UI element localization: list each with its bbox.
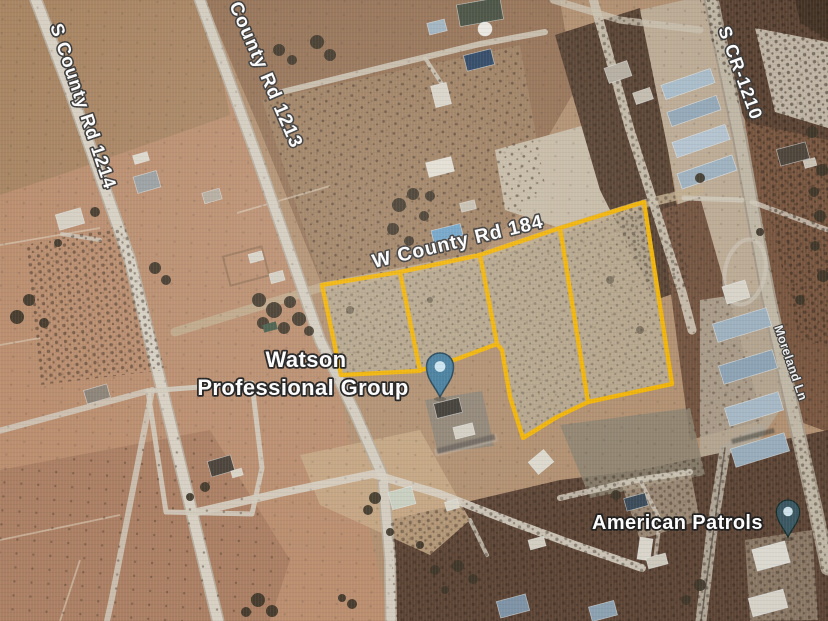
- watson-label-line1[interactable]: Watson: [265, 347, 346, 372]
- pin-inner-dot: [435, 361, 446, 372]
- map-canvas[interactable]: S County Rd 1214 County Rd 1213 S CR-121…: [0, 0, 828, 621]
- satellite-map: S County Rd 1214 County Rd 1213 S CR-121…: [0, 0, 828, 621]
- pin-inner-dot: [783, 507, 793, 517]
- watson-label-line2[interactable]: Professional Group: [197, 375, 408, 400]
- place-label-american-patrols[interactable]: American Patrols: [592, 512, 763, 534]
